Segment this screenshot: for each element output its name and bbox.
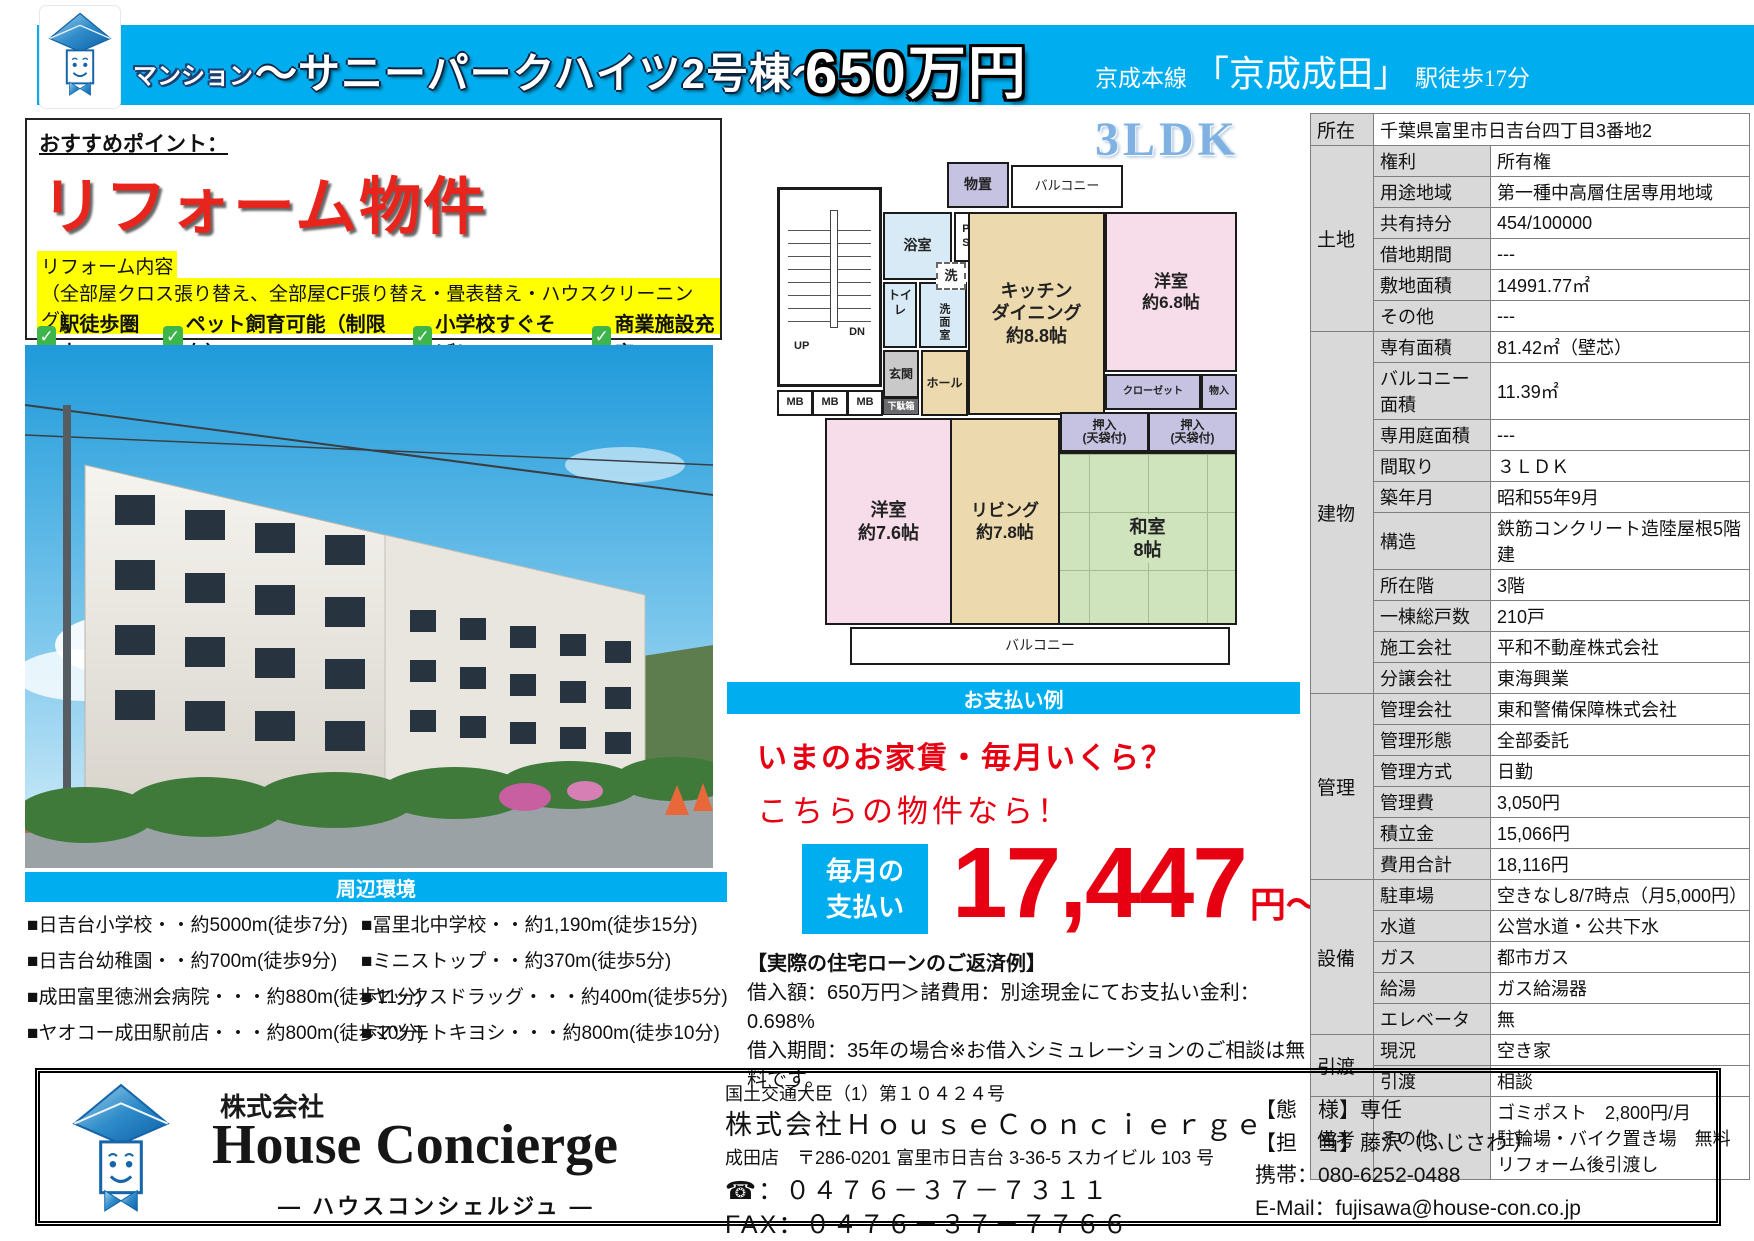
agent-mobile: 携帯：080-6252-0488 xyxy=(1255,1160,1581,1193)
monthly-amount: 17,447 円〜 xyxy=(952,826,1322,941)
detail-label: 費用合計 xyxy=(1374,849,1491,880)
loan-title: 【実際の住宅ローンのご返済例】 xyxy=(747,950,1307,979)
detail-value: 11.39㎡ xyxy=(1491,363,1750,420)
surrounding-item: ■日吉台小学校・・約5000m(徒歩7分) xyxy=(27,910,347,937)
washer-space: 洗 xyxy=(936,262,966,290)
footer-company-name: 株式会社ＨｏｕｓｅＣｏｎｃｉｅｒｇｅ xyxy=(725,1108,1265,1143)
detail-label: 構造 xyxy=(1374,513,1491,570)
loan-line1: 借入額：650万円＞諸費用：別途現金にてお支払い金利：0.698% xyxy=(747,979,1307,1037)
surrounding-item: ■ミニストップ・・約370m(徒歩5分) xyxy=(361,946,728,973)
walk-time: 駅徒歩17分 xyxy=(1415,59,1530,93)
detail-label: その他 xyxy=(1374,301,1491,332)
rail-line: 京成本線 xyxy=(1095,59,1187,93)
footer-fax: FAX：０４７６－３７－７７６６ xyxy=(725,1209,1265,1241)
surrounding-item: ■冨里北中学校・・約1,190m(徒歩15分) xyxy=(361,910,728,937)
detail-value: 14991.77㎡ xyxy=(1491,270,1750,301)
table-row: 施工会社平和不動産株式会社 xyxy=(1311,632,1750,663)
table-row: ガス都市ガス xyxy=(1311,942,1750,973)
stairs-up-label: UP xyxy=(794,340,809,354)
detail-value: 81.42㎡（壁芯） xyxy=(1491,332,1750,363)
detail-value: ３ＬＤＫ xyxy=(1491,451,1750,482)
reform-label: リフォーム内容 xyxy=(37,251,177,280)
detail-value: 空きなし8/7時点（月5,000円） xyxy=(1491,880,1750,911)
detail-label: 駐車場 xyxy=(1374,880,1491,911)
detail-value: 東和警備保障株式会社 xyxy=(1491,694,1750,725)
license-number: 国土交通大臣（1）第１０４２４号 xyxy=(725,1083,1265,1106)
detail-label: 借地期間 xyxy=(1374,239,1491,270)
room-kitchen-dining: キッチン ダイニング 約8.8帖 xyxy=(968,212,1105,415)
table-row: 管理管理会社東和警備保障株式会社 xyxy=(1311,694,1750,725)
table-row: 所在千葉県富里市日吉台四丁目3番地2 xyxy=(1311,114,1750,146)
payment-lead: こちらの物件なら！ xyxy=(757,786,1072,831)
detail-value: 昭和55年9月 xyxy=(1491,482,1750,513)
detail-value: 所有権 xyxy=(1491,146,1750,177)
house-concierge-logo-icon xyxy=(62,1083,180,1215)
table-row: 構造鉄筋コンクリート造陸屋根5階建 xyxy=(1311,513,1750,570)
detail-label: エレベータ xyxy=(1374,1004,1491,1035)
room-balcony-bottom: バルコニー xyxy=(850,627,1230,665)
room-oshiire: 押入 (天袋付) xyxy=(1060,412,1149,452)
surrounding-item: ■マツモトキヨシ・・・約800m(徒歩10分) xyxy=(361,1018,728,1045)
detail-label: 管理会社 xyxy=(1374,694,1491,725)
detail-value: 全部委託 xyxy=(1491,725,1750,756)
detail-value: 3階 xyxy=(1491,570,1750,601)
payment-heading-bar: お支払い例 xyxy=(727,682,1300,714)
room-western-7_6: 洋室 約7.6帖 xyxy=(825,418,952,625)
detail-label: 管理費 xyxy=(1374,787,1491,818)
table-row: 建物専有面積81.42㎡（壁芯） xyxy=(1311,332,1750,363)
detail-value: 210戸 xyxy=(1491,601,1750,632)
property-details: 所在千葉県富里市日吉台四丁目3番地2土地権利所有権用途地域第一種中高層住居専用地… xyxy=(1310,113,1750,1180)
table-row: 用途地域第一種中高層住居専用地域 xyxy=(1311,177,1750,208)
table-row: 引渡現況空き家 xyxy=(1311,1035,1750,1066)
surroundings-heading-bar: 周辺環境 xyxy=(25,872,727,902)
table-row: 築年月昭和55年9月 xyxy=(1311,482,1750,513)
detail-label: 管理形態 xyxy=(1374,725,1491,756)
floorplan: 3LDK UP DN MB MB MB 物置 バルコニー 浴室 PS トイレ 洗… xyxy=(760,112,1260,678)
table-row: 一棟総戸数210戸 xyxy=(1311,601,1750,632)
room-mb: MB xyxy=(847,390,883,416)
surroundings-list: ■日吉台小学校・・約5000m(徒歩7分)■冨里北中学校・・約1,190m(徒歩… xyxy=(27,910,727,1045)
detail-group-label: 管理 xyxy=(1311,694,1374,880)
detail-value: 日勤 xyxy=(1491,756,1750,787)
room-oshiire: 押入 (天袋付) xyxy=(1148,412,1237,452)
monthly-payment-box: 毎月の 支払い xyxy=(802,844,928,934)
room-mb: MB xyxy=(777,390,813,416)
detail-value: 15,066円 xyxy=(1491,818,1750,849)
room-closet: クローゼット xyxy=(1105,374,1201,410)
detail-label: 専用庭面積 xyxy=(1374,420,1491,451)
table-row: その他--- xyxy=(1311,301,1750,332)
detail-label: 築年月 xyxy=(1374,482,1491,513)
surrounding-item: ■成田富里徳洲会病院・・・約880m(徒歩11分) xyxy=(27,982,347,1009)
detail-label: 敷地面積 xyxy=(1374,270,1491,301)
detail-value: 空き家 xyxy=(1491,1035,1750,1066)
footer-contact-block: 国土交通大臣（1）第１０４２４号 株式会社ＨｏｕｓｅＣｏｎｃｉｅｒｇｅ 成田店 … xyxy=(725,1083,1265,1241)
surrounding-item: ■ヤオコー成田駅前店・・・約800m(徒歩10分) xyxy=(27,1018,347,1045)
detail-label: ガス xyxy=(1374,942,1491,973)
room-balcony-top: バルコニー xyxy=(1011,165,1123,208)
property-category-badge: マンション xyxy=(133,56,253,91)
recommend-main-copy: リフォーム物件 xyxy=(41,156,487,246)
details-table: 所在千葉県富里市日吉台四丁目3番地2土地権利所有権用途地域第一種中高層住居専用地… xyxy=(1310,113,1750,1180)
detail-value: 平和不動産株式会社 xyxy=(1491,632,1750,663)
property-photo xyxy=(25,345,713,868)
detail-group-label: 設備 xyxy=(1311,880,1374,1035)
table-row: 間取り３ＬＤＫ xyxy=(1311,451,1750,482)
stairs-dn-label: DN xyxy=(849,326,865,340)
detail-value: 東海興業 xyxy=(1491,663,1750,694)
footer-agent-block: 【態 様】専任 【担 当】藤沢（ふじさわ ） 携帯：080-6252-0488 … xyxy=(1255,1095,1581,1225)
surroundings-heading: 周辺環境 xyxy=(336,873,416,902)
detail-value: ガス給湯器 xyxy=(1491,973,1750,1004)
property-price: 650万円 xyxy=(805,26,1028,110)
detail-label: 用途地域 xyxy=(1374,177,1491,208)
detail-value: 454/100000 xyxy=(1491,208,1750,239)
table-row: 所在階3階 xyxy=(1311,570,1750,601)
footer-branch-address: 成田店 〒286-0201 富里市日吉台 3-36-5 スカイビル 103 号 xyxy=(725,1147,1265,1170)
station-name: 「京成成田」 xyxy=(1193,45,1409,97)
table-row: 給湯ガス給湯器 xyxy=(1311,973,1750,1004)
room-living: リビング 約7.8帖 xyxy=(950,418,1060,625)
floorplan-type-label: 3LDK xyxy=(1095,112,1239,167)
table-row: 管理形態全部委託 xyxy=(1311,725,1750,756)
room-storage: 物置 xyxy=(947,162,1009,208)
detail-value: 第一種中高層住居専用地域 xyxy=(1491,177,1750,208)
property-title: 〜サニーパークハイツ2号棟〜 xyxy=(255,40,835,101)
room-western-6_8: 洋室 約6.8帖 xyxy=(1105,212,1237,372)
detail-value: 公営水道・公共下水 xyxy=(1491,911,1750,942)
stairs-rail-icon xyxy=(830,210,838,328)
detail-value: --- xyxy=(1491,239,1750,270)
room-toilet: トイレ xyxy=(883,282,917,348)
room-japanese: 和室 8帖 xyxy=(1058,452,1237,625)
detail-value: 千葉県富里市日吉台四丁目3番地2 xyxy=(1374,114,1750,146)
footer-brand-name: House Concierge xyxy=(212,1113,618,1177)
table-row: 積立金15,066円 xyxy=(1311,818,1750,849)
payment-question: いまのお家賃・毎月いくら？ xyxy=(757,733,1173,777)
detail-label: 管理方式 xyxy=(1374,756,1491,787)
room-mb: MB xyxy=(812,390,848,416)
room-stairwell: UP DN xyxy=(777,187,882,387)
detail-label: 専有面積 xyxy=(1374,332,1491,363)
room-shoebox: 下駄箱 xyxy=(883,398,919,415)
recommend-heading: おすすめポイント： xyxy=(39,128,228,158)
detail-label: バルコニー面積 xyxy=(1374,363,1491,420)
footer-tel: ☎：０４７６－３７－７３１１ xyxy=(725,1175,1265,1208)
table-row: 管理費3,050円 xyxy=(1311,787,1750,818)
detail-label: 積立金 xyxy=(1374,818,1491,849)
agent-name: 【担 当】藤沢（ふじさわ ） xyxy=(1255,1128,1581,1161)
room-hall: ホール xyxy=(921,350,968,416)
table-row: 専用庭面積--- xyxy=(1311,420,1750,451)
table-row: 共有持分454/100000 xyxy=(1311,208,1750,239)
detail-label: 施工会社 xyxy=(1374,632,1491,663)
detail-value: 18,116円 xyxy=(1491,849,1750,880)
house-concierge-logo-icon xyxy=(47,11,113,104)
detail-label: 所在階 xyxy=(1374,570,1491,601)
table-row: 土地権利所有権 xyxy=(1311,146,1750,177)
detail-label: 権利 xyxy=(1374,146,1491,177)
agent-type: 【態 様】専任 xyxy=(1255,1095,1581,1128)
detail-group-label: 建物 xyxy=(1311,332,1374,694)
room-washroom: 洗面室 xyxy=(919,282,967,348)
station-access: 京成本線 「京成成田」 駅徒歩17分 xyxy=(1095,45,1715,97)
detail-value: --- xyxy=(1491,301,1750,332)
monthly-amount-value: 17,447 xyxy=(952,826,1246,941)
detail-label: 分譲会社 xyxy=(1374,663,1491,694)
flyer-page: マンション 〜サニーパークハイツ2号棟〜 650万円 京成本線 「京成成田」 駅… xyxy=(0,0,1754,1241)
detail-label: 一棟総戸数 xyxy=(1374,601,1491,632)
detail-group-label: 所在 xyxy=(1311,114,1374,146)
detail-value: --- xyxy=(1491,420,1750,451)
table-row: バルコニー面積11.39㎡ xyxy=(1311,363,1750,420)
detail-value: 3,050円 xyxy=(1491,787,1750,818)
recommend-box: おすすめポイント： リフォーム物件 リフォーム内容 （全部屋クロス張り替え、全部… xyxy=(25,118,722,340)
footer: 株式会社 House Concierge ― ハウスコンシェルジュ ― 国土交通… xyxy=(35,1068,1721,1226)
detail-label: 共有持分 xyxy=(1374,208,1491,239)
surrounding-item: ■ヤックスドラッグ・・・約400m(徒歩5分) xyxy=(361,982,728,1009)
room-entrance: 玄関 xyxy=(883,350,919,398)
detail-value: 都市ガス xyxy=(1491,942,1750,973)
table-row: 借地期間--- xyxy=(1311,239,1750,270)
payment-heading: お支払い例 xyxy=(964,684,1064,713)
agent-email: E-Mail：fujisawa@house-con.co.jp xyxy=(1255,1193,1581,1226)
detail-group-label: 土地 xyxy=(1311,146,1374,332)
room-storage-small: 物入 xyxy=(1201,374,1237,410)
table-row: 水道公営水道・公共下水 xyxy=(1311,911,1750,942)
detail-value: 鉄筋コンクリート造陸屋根5階建 xyxy=(1491,513,1750,570)
surrounding-item: ■日吉台幼稚園・・約700m(徒歩9分) xyxy=(27,946,347,973)
table-row: 設備駐車場空きなし8/7時点（月5,000円） xyxy=(1311,880,1750,911)
detail-label: 現況 xyxy=(1374,1035,1491,1066)
footer-brand-kana: ― ハウスコンシェルジュ ― xyxy=(278,1189,595,1221)
table-row: エレベータ無 xyxy=(1311,1004,1750,1035)
detail-value: 無 xyxy=(1491,1004,1750,1035)
header-logo-box xyxy=(40,6,120,108)
table-row: 分譲会社東海興業 xyxy=(1311,663,1750,694)
detail-label: 給湯 xyxy=(1374,973,1491,1004)
table-row: 敷地面積14991.77㎡ xyxy=(1311,270,1750,301)
detail-label: 水道 xyxy=(1374,911,1491,942)
table-row: 費用合計18,116円 xyxy=(1311,849,1750,880)
detail-label: 間取り xyxy=(1374,451,1491,482)
table-row: 管理方式日勤 xyxy=(1311,756,1750,787)
